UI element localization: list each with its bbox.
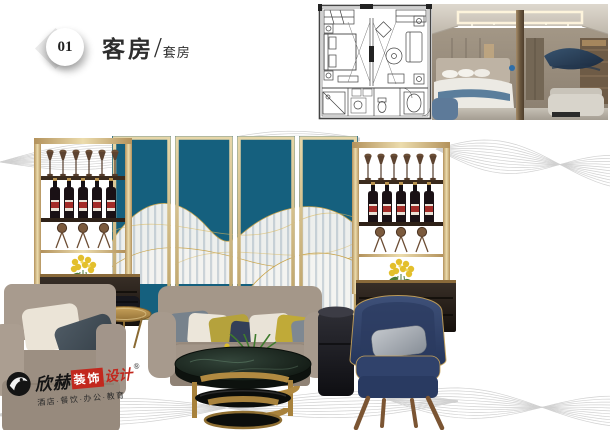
page-title: 客房 / 套房	[102, 30, 191, 65]
title-divider: /	[154, 33, 162, 65]
coffee-table	[170, 334, 316, 430]
wine-shelf-right	[352, 142, 450, 294]
floor-plan-drawing	[318, 4, 432, 120]
blue-armchair	[318, 286, 452, 430]
wine-shelf-left	[34, 138, 132, 290]
presentation-board: 01 客房 / 套房	[0, 0, 610, 430]
registered-mark: ®	[133, 361, 140, 370]
section-number-badge: 01	[46, 28, 84, 66]
room-render-photo	[432, 4, 608, 120]
title-subtitle: 套房	[163, 42, 191, 61]
brand-name-boxed: 装饰	[71, 367, 105, 389]
section-number: 01	[58, 39, 73, 56]
brand-name-red: 设计	[103, 364, 133, 386]
cylinder-side-table	[318, 307, 354, 397]
brand-emblem-icon	[5, 370, 33, 398]
title-main: 客房	[102, 30, 154, 64]
brand-name-black: 欣赫	[34, 367, 72, 395]
